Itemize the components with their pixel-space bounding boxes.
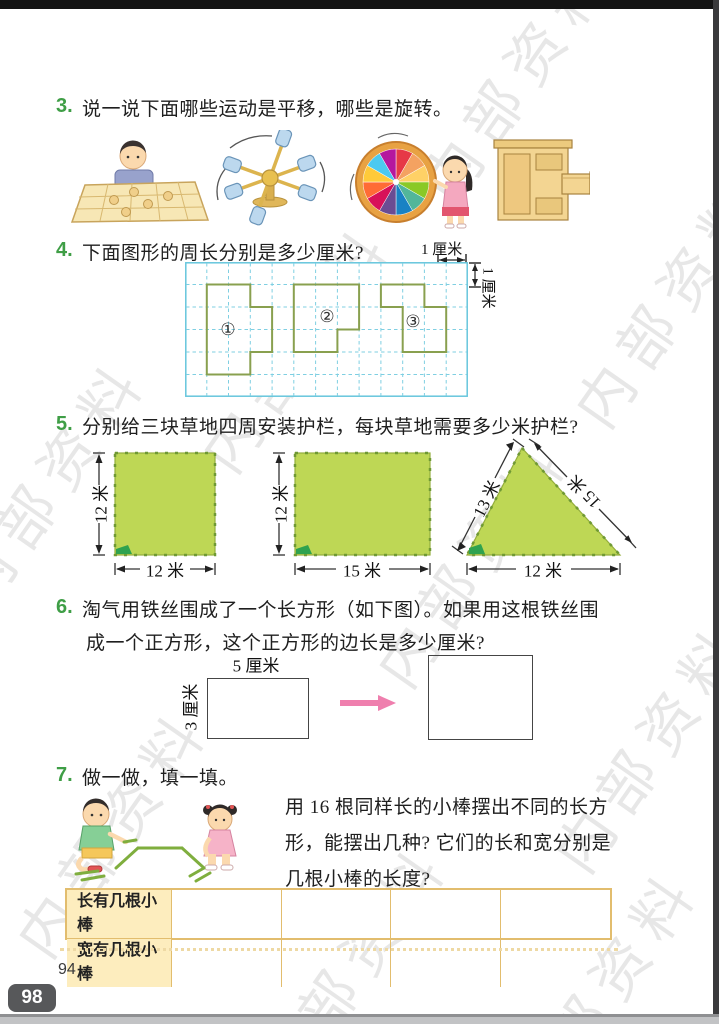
shape-2-label: ② — [319, 307, 334, 327]
q6-rect-top-label: 5 厘米 — [233, 652, 280, 677]
table-row1-label: 长有几根小棒 — [67, 890, 172, 939]
scan-edge-bottom — [0, 1017, 719, 1024]
triangle-bottom-dim: 12 米 — [524, 557, 562, 582]
table-cell — [282, 890, 392, 939]
q7-para-line2: 形，能摆出几种? 它们的长和宽分别是 — [285, 828, 611, 855]
table-cell — [391, 939, 501, 987]
q7-kids-illustration — [58, 786, 273, 884]
table-cell — [501, 890, 611, 939]
page-number: 94 — [58, 961, 76, 979]
q4-number: 4. — [56, 239, 73, 262]
girl-spinning-wheel-scene — [350, 133, 472, 228]
shape-1-label: ① — [220, 320, 235, 340]
table-cell — [501, 939, 611, 987]
q7-para-line3: 几根小棒的长度? — [285, 864, 430, 891]
q3-number: 3. — [56, 95, 73, 118]
shape-3-label: ③ — [405, 312, 420, 332]
girl-figure — [435, 155, 472, 228]
q4-text: 下面图形的周长分别是多少厘米? — [82, 238, 364, 265]
table-cell — [391, 890, 501, 939]
q6-text-line1: 淘气用铁丝围成了一个长方形（如下图）。如果用这根铁丝围 — [82, 595, 599, 622]
q7-number: 7. — [56, 764, 73, 787]
square-bottom-dim: 12 米 — [146, 557, 184, 582]
table-cell — [172, 890, 282, 939]
q5-text: 分别给三块草地四周安装护栏，每块草地需要多少米护栏? — [82, 412, 578, 439]
q3-illustrations — [70, 130, 590, 230]
table-cell — [172, 939, 282, 987]
q6-rect-left-label: 3 厘米 — [177, 684, 202, 731]
transform-arrow-icon — [338, 694, 398, 712]
sticks-table: 长有几根小棒 宽有几根小棒 — [65, 888, 612, 940]
q7-para-line1: 用 16 根同样长的小棒摆出不同的长方 — [285, 792, 608, 819]
rectangle-bottom-dim: 15 米 — [343, 557, 381, 582]
textbook-page: 内部资料 内部资料 内部资料 内部资料 内部资料 内部资料 内部资料 内部资料 … — [0, 0, 719, 1024]
footer-dotted-divider — [60, 948, 618, 951]
hand-pulling-drawer-scene — [494, 140, 590, 220]
boy-playing-chess-scene — [72, 140, 208, 222]
rotating-cup-toy-scene — [217, 130, 325, 226]
wire-rectangle — [207, 678, 309, 739]
boy-figure — [78, 798, 136, 872]
table-row2-label: 宽有几根小棒 — [67, 939, 172, 987]
page-badge: 98 — [8, 984, 56, 1012]
q4-unit-right-label: 1 厘米 — [479, 267, 500, 308]
girl-figure — [203, 804, 237, 870]
scan-edge-right — [713, 0, 719, 1014]
q5-number: 5. — [56, 413, 73, 436]
table-cell — [282, 939, 392, 987]
q6-number: 6. — [56, 596, 73, 619]
rectangle-left-dim: 12 米 — [267, 485, 292, 523]
square-left-dim: 12 米 — [87, 485, 112, 523]
q6-text-line2: 成一个正方形，这个正方形的边长是多少厘米? — [86, 628, 485, 655]
scan-edge-top — [0, 0, 719, 9]
q3-text: 说一说下面哪些运动是平移，哪些是旋转。 — [82, 94, 453, 121]
wire-square — [428, 655, 533, 740]
